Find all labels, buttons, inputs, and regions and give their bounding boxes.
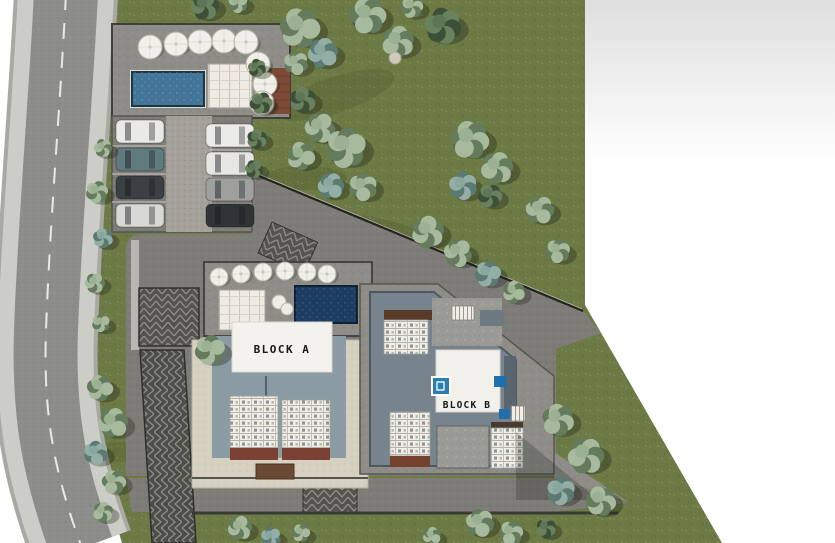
roof-vents (511, 406, 525, 421)
car (116, 204, 164, 227)
block-b-wood-strip-top (384, 310, 432, 320)
block-a-facade-left (230, 396, 278, 448)
block-a-brick-left (230, 448, 278, 460)
retaining-wall (131, 240, 139, 350)
parking-lot (112, 116, 254, 232)
block-a-brick-right (282, 448, 330, 460)
rock (389, 52, 401, 64)
planter-box (256, 464, 294, 479)
background-gradient (575, 0, 835, 165)
site-plan-image: BLOCK A BLOCK B (0, 0, 835, 543)
block-a-building: BLOCK A (192, 262, 372, 488)
road-asphalt (46, 0, 82, 543)
parking-aisle (166, 116, 212, 232)
block-b-label: BLOCK B (443, 400, 491, 411)
skylight-blue-1 (494, 376, 506, 387)
elevator-icon (431, 376, 451, 396)
car (206, 124, 254, 147)
garage-ramp (139, 288, 199, 346)
block-a-facade-right (282, 400, 330, 449)
sunbed-platform (208, 64, 252, 108)
car (206, 178, 254, 201)
block-b-brick-left (390, 456, 430, 467)
site-plan-render: BLOCK A BLOCK B (0, 0, 835, 543)
car (116, 176, 164, 199)
roof-pool (295, 286, 357, 323)
car (116, 120, 164, 143)
crosswalk-south (303, 486, 357, 512)
block-b-patio (437, 426, 489, 468)
block-b-facade-topleft (384, 320, 428, 354)
skylight-blue-2 (499, 409, 510, 419)
road (46, 0, 82, 543)
car (116, 148, 164, 171)
block-b-facade-bottomleft (390, 412, 430, 456)
swimming-pool (130, 70, 206, 108)
car (206, 204, 254, 227)
block-a-label: BLOCK A (254, 343, 311, 356)
